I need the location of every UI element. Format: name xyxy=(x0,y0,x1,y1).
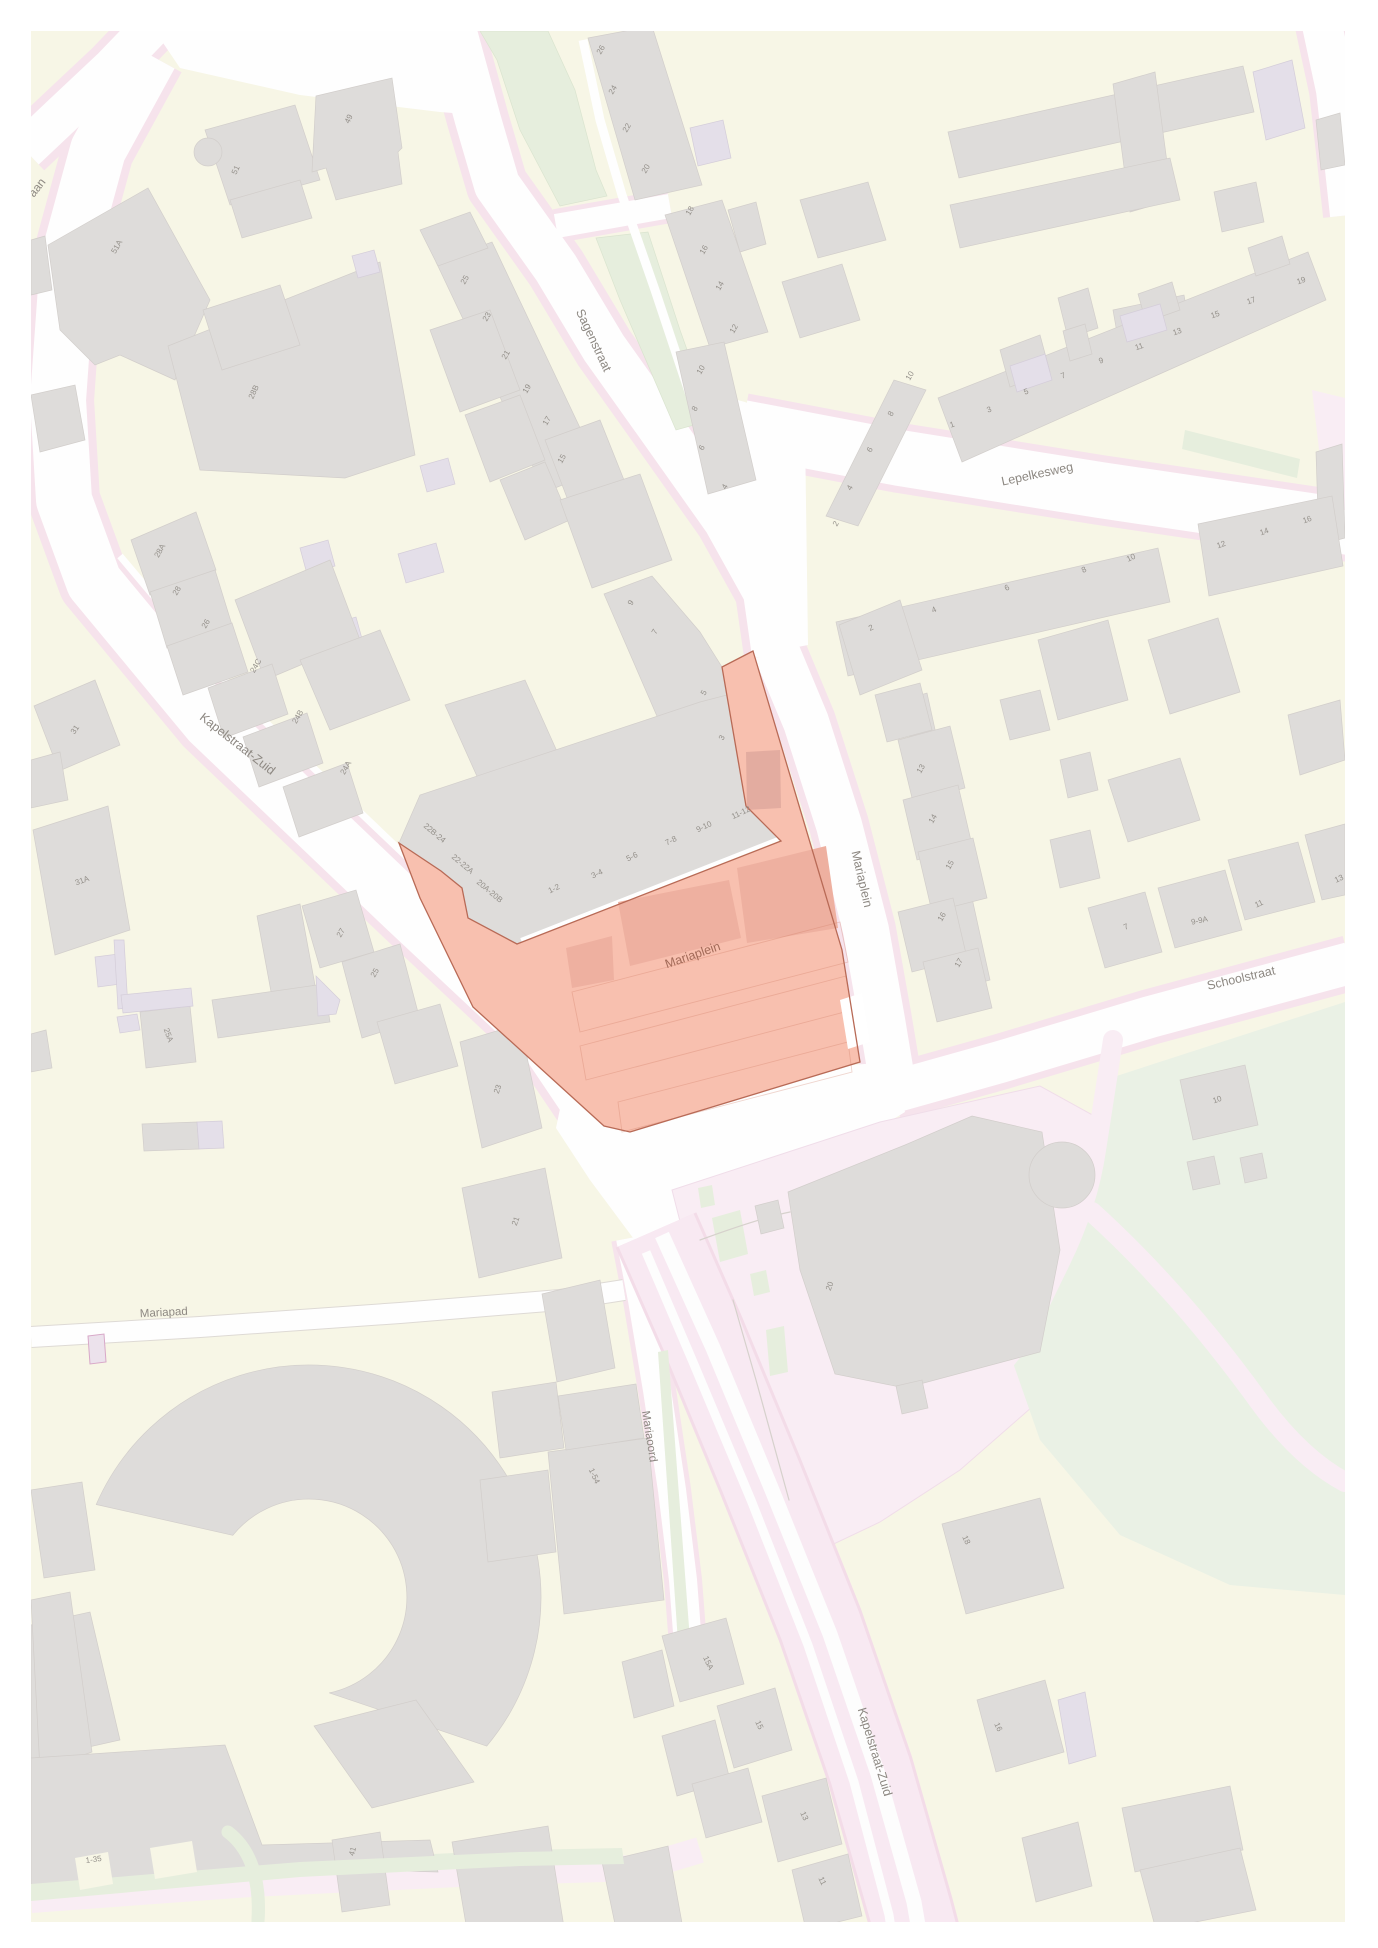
svg-text:Mariapad: Mariapad xyxy=(140,1306,189,1320)
